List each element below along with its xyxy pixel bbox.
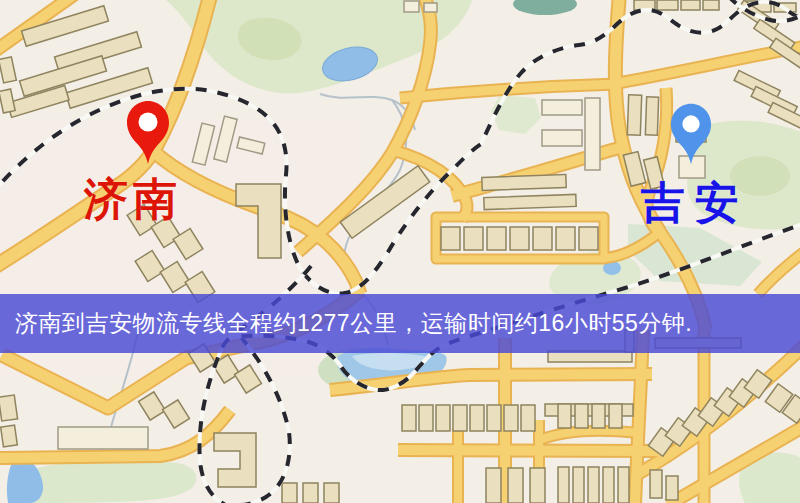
destination-pin-icon bbox=[666, 101, 716, 168]
route-info-text: 济南到吉安物流专线全程约1277公里，运输时间约16小时55分钟. bbox=[0, 308, 692, 339]
route-info-banner: 济南到吉安物流专线全程约1277公里，运输时间约16小时55分钟. bbox=[0, 294, 800, 353]
destination-label: 吉安 bbox=[641, 181, 749, 225]
map-screenshot: 济南到吉安物流专线全程约1277公里，运输时间约16小时55分钟. 济南 吉安 bbox=[0, 0, 800, 503]
map-image bbox=[0, 0, 800, 503]
origin-pin[interactable] bbox=[122, 98, 174, 172]
origin-label: 济南 bbox=[84, 177, 182, 221]
destination-pin[interactable] bbox=[666, 101, 716, 172]
origin-pin-icon bbox=[122, 98, 174, 168]
